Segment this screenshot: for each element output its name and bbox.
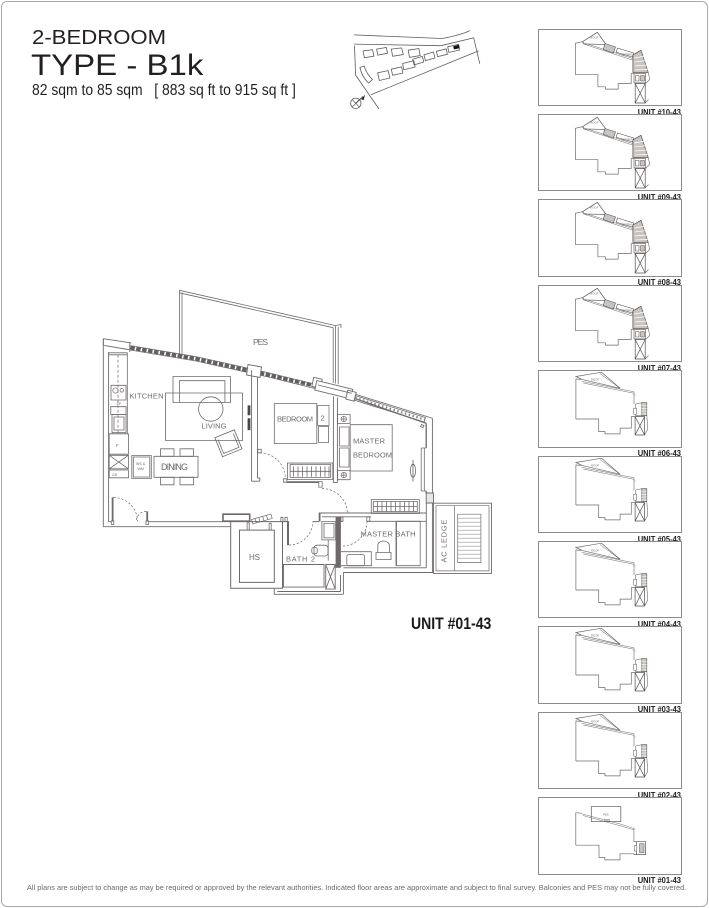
svg-text:BEDROOM: BEDROOM — [277, 415, 313, 424]
svg-text:BEDROOM: BEDROOM — [353, 451, 392, 460]
svg-text:F: F — [116, 443, 119, 448]
svg-text:BATH 2: BATH 2 — [286, 555, 315, 564]
svg-text:SP: SP — [117, 402, 122, 406]
svg-text:KITCHEN: KITCHEN — [130, 392, 164, 401]
svg-text:AC LEDGE: AC LEDGE — [440, 520, 449, 563]
svg-text:WM: WM — [138, 467, 144, 471]
svg-text:PES: PES — [253, 337, 268, 347]
svg-text:LIVING: LIVING — [202, 422, 227, 431]
svg-text:CB: CB — [112, 473, 118, 477]
svg-text:HS: HS — [249, 553, 260, 562]
svg-text:MASTER: MASTER — [353, 437, 386, 446]
svg-text:2: 2 — [321, 414, 325, 423]
svg-text:MASTER BATH: MASTER BATH — [361, 530, 416, 539]
svg-text:WS &: WS & — [136, 462, 146, 466]
svg-text:DINING: DINING — [161, 462, 188, 472]
